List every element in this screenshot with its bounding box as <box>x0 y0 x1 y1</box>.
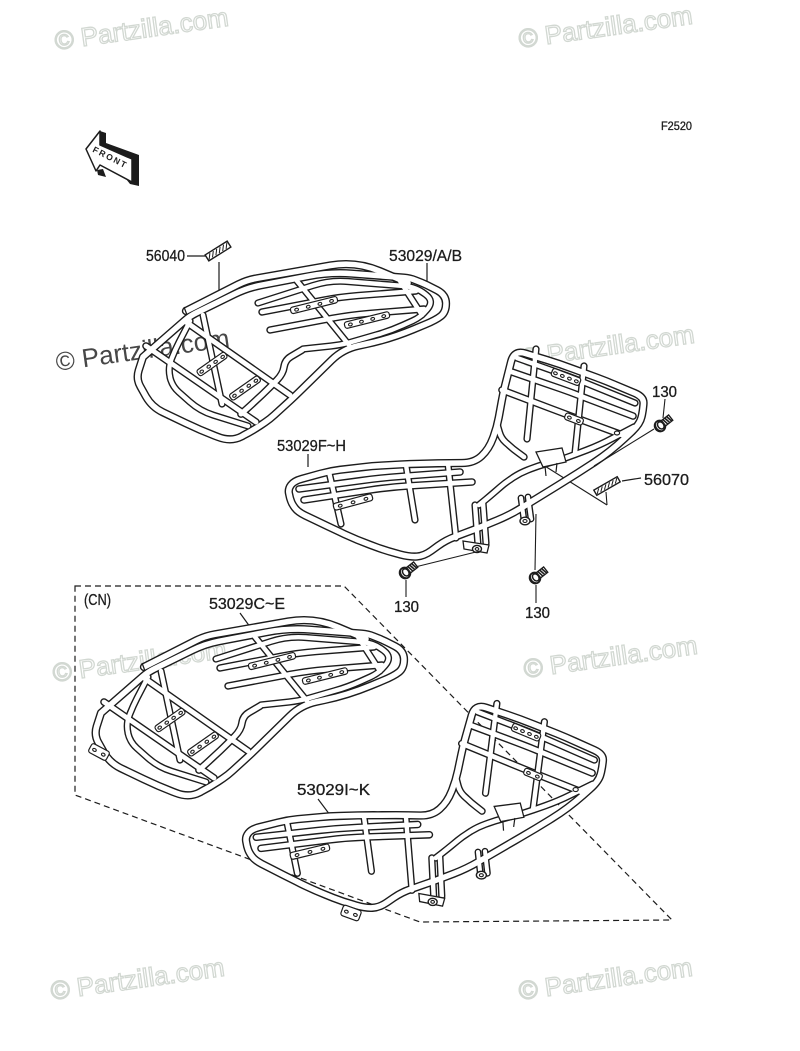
svg-text:53029/A/B: 53029/A/B <box>389 248 462 265</box>
svg-text:130: 130 <box>394 599 419 616</box>
svg-text:56040: 56040 <box>146 248 185 265</box>
svg-text:F2520: F2520 <box>661 121 692 133</box>
svg-text:130: 130 <box>525 605 550 622</box>
svg-text:53029F~H: 53029F~H <box>277 438 346 455</box>
svg-text:53029C~E: 53029C~E <box>209 596 285 613</box>
svg-text:56070: 56070 <box>644 472 689 489</box>
svg-text:(CN): (CN) <box>84 592 111 609</box>
svg-text:130: 130 <box>652 384 677 401</box>
svg-text:53029I~K: 53029I~K <box>297 782 370 799</box>
